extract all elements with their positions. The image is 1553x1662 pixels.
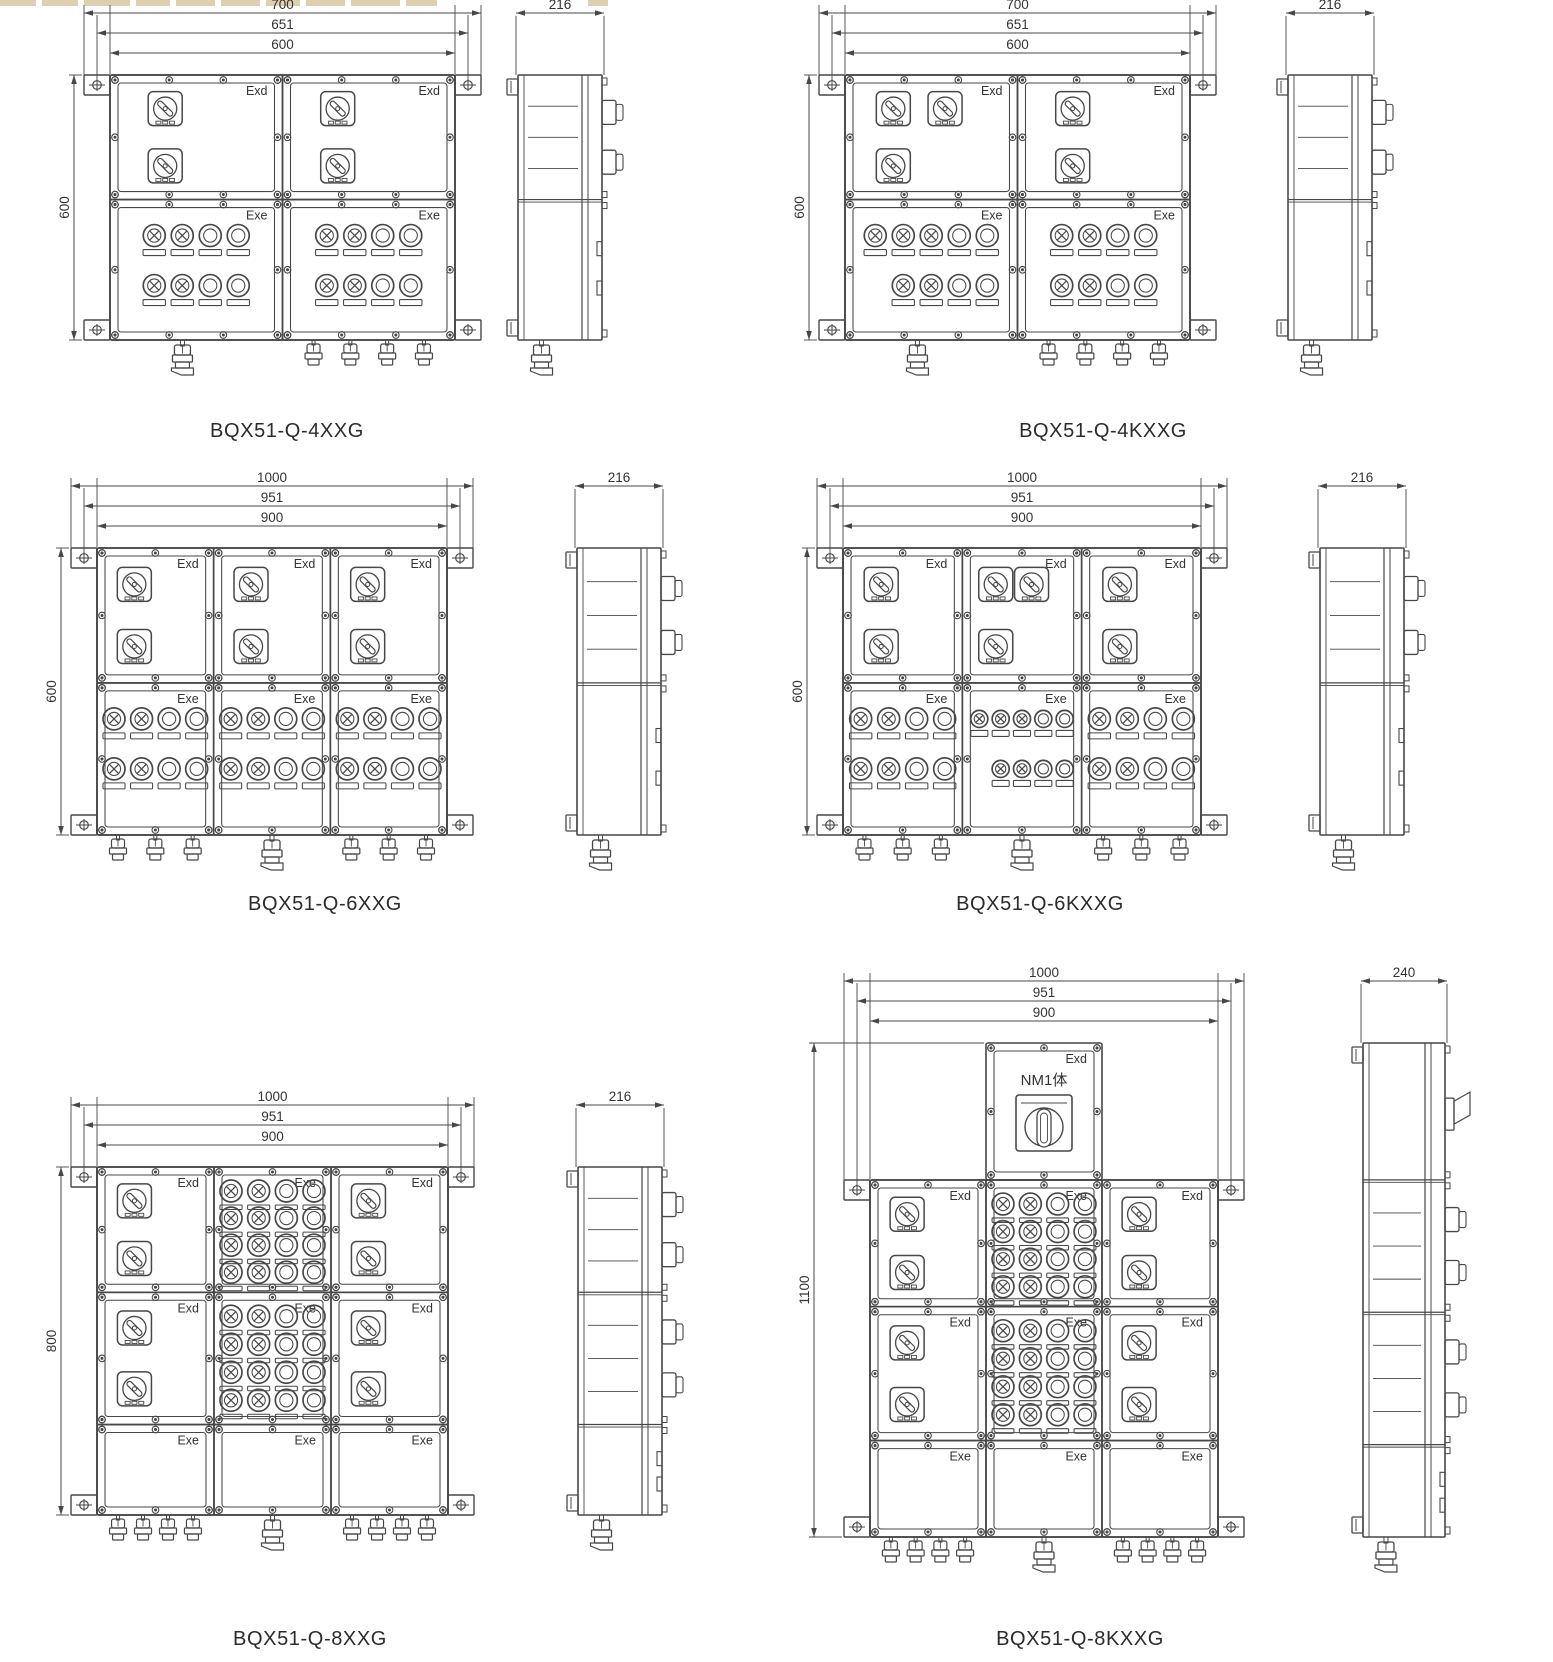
compartment-8kxxg-r2c1: Exe <box>986 1441 1102 1537</box>
svg-text:Exe: Exe <box>1181 1450 1203 1464</box>
compartment-8xxg-r1c1: Exe <box>214 1292 331 1424</box>
svg-text:900: 900 <box>261 510 284 525</box>
svg-text:Exd: Exd <box>177 557 199 571</box>
top-compartment-8kxxg: ExdNM1体 <box>986 1043 1102 1180</box>
front-view-6kxxg: ExdExdExdExeExeExe1000951900600 <box>790 470 1227 870</box>
svg-text:Exd: Exd <box>177 1176 199 1190</box>
compartment-8xxg-r0c1: Exe <box>214 1167 331 1292</box>
svg-text:Exe: Exe <box>177 692 199 706</box>
svg-text:Exd: Exd <box>1181 1316 1203 1330</box>
svg-text:Exe: Exe <box>246 209 268 223</box>
svg-text:Exe: Exe <box>418 209 440 223</box>
compartment-8kxxg-r2c2: Exe <box>1102 1441 1218 1537</box>
svg-text:800: 800 <box>44 1330 59 1353</box>
caption-bqx51-q-6kxxg: BQX51-Q-6KXXG <box>956 893 1124 916</box>
svg-text:951: 951 <box>261 490 284 505</box>
compartment-6xxg-r1c1: Exe <box>214 683 331 835</box>
compartment-6xxg-r1c0: Exe <box>97 683 214 835</box>
svg-text:600: 600 <box>790 680 805 703</box>
compartment-6kxxg-r1c2: Exe <box>1082 683 1201 835</box>
compartment-4kxxg-r0c1: Exd <box>1018 75 1191 200</box>
compartment-6kxxg-r0c1: Exd <box>962 548 1081 683</box>
svg-text:Exd: Exd <box>177 1301 199 1315</box>
compartment-4kxxg-r0c0: Exd <box>845 75 1018 200</box>
front-view-8kxxg: ExdExeExdExdExeExdExeExeExeExdNM1体100095… <box>797 965 1244 1572</box>
caption-bqx51-q-6xxg: BQX51-Q-6XXG <box>248 893 402 916</box>
svg-text:1000: 1000 <box>257 1089 287 1104</box>
compartment-6kxxg-r1c0: Exe <box>843 683 962 835</box>
svg-text:Exd: Exd <box>294 557 316 571</box>
side-view-4xxg: 216 <box>507 0 623 375</box>
svg-text:951: 951 <box>261 1109 284 1124</box>
svg-text:Exe: Exe <box>410 692 432 706</box>
svg-text:Exe: Exe <box>1164 692 1186 706</box>
cable-glands-6xxg <box>110 835 435 870</box>
compartment-4xxg-r0c0: Exd <box>110 75 283 200</box>
svg-text:Exd: Exd <box>926 557 948 571</box>
svg-text:Exe: Exe <box>949 1450 971 1464</box>
svg-text:Exd: Exd <box>246 84 268 98</box>
svg-text:651: 651 <box>1006 17 1029 32</box>
compartment-8kxxg-r1c2: Exd <box>1102 1307 1218 1441</box>
side-view-8kxxg: 240 <box>1352 965 1470 1572</box>
compartment-6xxg-r1c2: Exe <box>330 683 447 835</box>
compartment-6kxxg-r0c0: Exd <box>843 548 962 683</box>
svg-text:Exd: Exd <box>1181 1189 1203 1203</box>
front-view-4xxg: ExdExdExeExe700651600600 <box>57 0 481 375</box>
cable-glands-8xxg <box>110 1515 436 1550</box>
compartment-4xxg-r1c1: Exe <box>283 200 456 340</box>
svg-text:Exd: Exd <box>1065 1052 1087 1066</box>
compartment-4kxxg-r1c1: Exe <box>1018 200 1191 340</box>
compartment-6xxg-r0c0: Exd <box>97 548 214 683</box>
compartment-6xxg-r0c1: Exd <box>214 548 331 683</box>
compartment-8kxxg-r2c0: Exe <box>870 1441 986 1537</box>
svg-text:700: 700 <box>271 0 294 12</box>
svg-text:600: 600 <box>792 196 807 219</box>
compartment-4xxg-r1c0: Exe <box>110 200 283 340</box>
cable-glands-4xxg <box>171 340 432 375</box>
svg-text:216: 216 <box>549 0 572 12</box>
svg-text:Exd: Exd <box>1045 557 1067 571</box>
compartment-8xxg-r0c2: Exd <box>331 1167 448 1292</box>
svg-text:900: 900 <box>1011 510 1034 525</box>
compartment-6kxxg-r1c1: Exe <box>962 683 1081 835</box>
compartment-8kxxg-r1c0: Exd <box>870 1307 986 1441</box>
svg-text:Exd: Exd <box>981 84 1003 98</box>
compartment-8kxxg-r0c0: Exd <box>870 1180 986 1307</box>
svg-text:951: 951 <box>1011 490 1034 505</box>
cropped-text-artifact <box>0 0 608 6</box>
compartment-8kxxg-r1c1: Exe <box>986 1307 1102 1441</box>
front-view-8xxg: ExdExeExdExdExeExdExeExeExe1000951900800 <box>44 1089 474 1550</box>
svg-text:1000: 1000 <box>1029 965 1059 980</box>
svg-text:Exe: Exe <box>1153 209 1175 223</box>
dimensions-8xxg: 1000951900800 <box>44 1089 474 1515</box>
svg-text:600: 600 <box>271 37 294 52</box>
svg-text:Exe: Exe <box>1045 692 1067 706</box>
compartment-4xxg-r0c1: Exd <box>283 75 456 200</box>
svg-text:Exe: Exe <box>1065 1450 1087 1464</box>
drawing-sheet: ExdExdExeExe700651600600216ExdExdExeExe7… <box>0 0 1553 1662</box>
dimensions-4kxxg: 700651600600 <box>792 0 1216 340</box>
svg-text:951: 951 <box>1033 985 1056 1000</box>
svg-text:216: 216 <box>1351 470 1374 485</box>
svg-text:1000: 1000 <box>1007 470 1037 485</box>
svg-text:900: 900 <box>1033 1005 1056 1020</box>
svg-text:1100: 1100 <box>797 1275 812 1304</box>
side-view-4kxxg: 216 <box>1277 0 1393 375</box>
caption-bqx51-q-8xxg: BQX51-Q-8XXG <box>233 1628 387 1651</box>
svg-text:Exe: Exe <box>294 692 316 706</box>
side-view-8xxg: 216 <box>567 1089 683 1550</box>
svg-text:216: 216 <box>1319 0 1342 12</box>
cable-glands-8kxxg <box>882 1537 1205 1572</box>
side-view-6kxxg: 216 <box>1309 470 1425 870</box>
svg-text:240: 240 <box>1393 965 1416 980</box>
svg-text:Exd: Exd <box>411 1301 433 1315</box>
svg-text:1000: 1000 <box>257 470 287 485</box>
front-view-6xxg: ExdExdExdExeExeExe1000951900600 <box>44 470 473 870</box>
compartment-8kxxg-r0c1: Exe <box>986 1180 1102 1307</box>
dimensions-4xxg: 700651600600 <box>57 0 481 340</box>
svg-text:Exe: Exe <box>981 209 1003 223</box>
compartment-8xxg-r1c0: Exd <box>97 1292 214 1424</box>
compartment-6xxg-r0c2: Exd <box>330 548 447 683</box>
caption-bqx51-q-4kxxg: BQX51-Q-4KXXG <box>1019 420 1187 443</box>
svg-text:216: 216 <box>608 470 631 485</box>
svg-text:600: 600 <box>44 680 59 703</box>
svg-text:651: 651 <box>271 17 294 32</box>
svg-text:216: 216 <box>609 1089 632 1104</box>
side-view-6xxg: 216 <box>566 470 682 870</box>
svg-text:Exd: Exd <box>410 557 432 571</box>
front-view-4kxxg: ExdExdExeExe700651600600 <box>792 0 1216 375</box>
svg-text:Exd: Exd <box>411 1176 433 1190</box>
svg-text:Exe: Exe <box>177 1434 199 1448</box>
svg-text:Exe: Exe <box>926 692 948 706</box>
compartment-8xxg-r2c2: Exe <box>331 1425 448 1515</box>
compartment-8xxg-r1c2: Exd <box>331 1292 448 1424</box>
compartment-8xxg-r2c1: Exe <box>214 1425 331 1515</box>
caption-bqx51-q-4xxg: BQX51-Q-4XXG <box>210 420 364 443</box>
svg-text:Exd: Exd <box>418 84 440 98</box>
compartment-6kxxg-r0c2: Exd <box>1082 548 1201 683</box>
svg-text:900: 900 <box>261 1129 284 1144</box>
compartment-4kxxg-r1c0: Exe <box>845 200 1018 340</box>
svg-text:Exd: Exd <box>949 1189 971 1203</box>
cable-glands-6kxxg <box>856 835 1188 870</box>
svg-text:600: 600 <box>1006 37 1029 52</box>
compartment-8xxg-r0c0: Exd <box>97 1167 214 1292</box>
svg-text:Exe: Exe <box>411 1434 433 1448</box>
compartment-8kxxg-r0c2: Exd <box>1102 1180 1218 1307</box>
caption-bqx51-q-8kxxg: BQX51-Q-8KXXG <box>996 1628 1164 1651</box>
svg-text:Exe: Exe <box>294 1434 316 1448</box>
svg-text:Exd: Exd <box>949 1316 971 1330</box>
compartment-8xxg-r2c0: Exe <box>97 1425 214 1515</box>
svg-text:NM1体: NM1体 <box>1021 1072 1068 1089</box>
svg-text:600: 600 <box>57 196 72 219</box>
svg-text:700: 700 <box>1006 0 1029 12</box>
svg-text:Exd: Exd <box>1153 84 1175 98</box>
svg-text:Exd: Exd <box>1164 557 1186 571</box>
cable-glands-4kxxg <box>906 340 1167 375</box>
technical-drawing-canvas: ExdExdExeExe700651600600216ExdExdExeExe7… <box>0 0 1553 1662</box>
